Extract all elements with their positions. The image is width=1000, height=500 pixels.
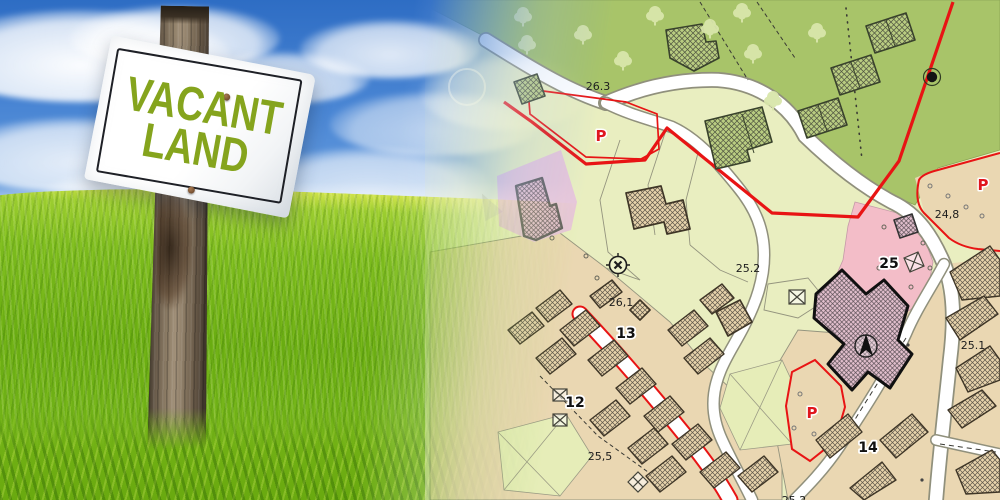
vacant-land-composite: VACANT LAND — [0, 0, 1000, 500]
area-label-26-1: 26,1 — [609, 296, 634, 309]
area-label-25-2-bottom: 25,2 — [782, 494, 807, 500]
block-number-13: 13 — [616, 326, 635, 342]
area-label-25-2: 25.2 — [736, 262, 761, 275]
north-arrow-icon — [855, 334, 877, 357]
block-number-12: 12 — [565, 395, 584, 411]
area-label-26-3: 26.3 — [586, 80, 611, 93]
block-number-14: 14 — [858, 440, 878, 456]
parking-marker: P — [807, 404, 818, 422]
area-label-24-8: 24,8 — [935, 208, 960, 221]
area-label-25-5: 25,5 — [588, 450, 613, 463]
parking-marker: P — [978, 176, 989, 194]
cadastral-map: 26.3 P 25.2 26,1 13 12 25,5 25 24,8 P P … — [0, 0, 1000, 500]
block-number-25: 25 — [879, 256, 898, 272]
area-label-25-1: 25.1 — [961, 339, 986, 352]
parking-marker: P — [596, 127, 607, 145]
